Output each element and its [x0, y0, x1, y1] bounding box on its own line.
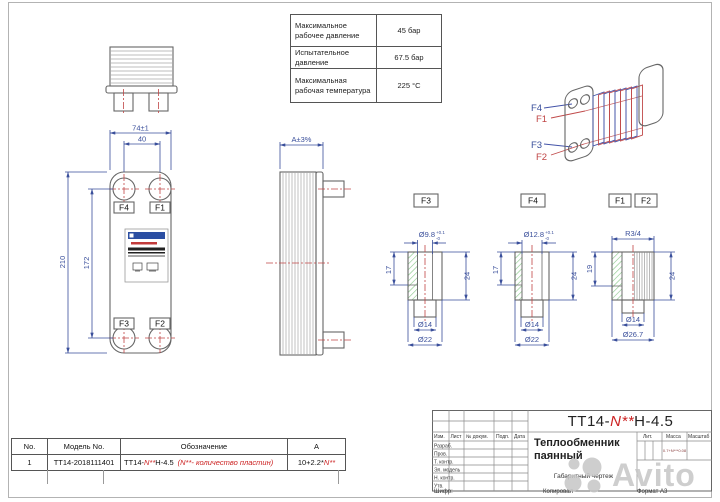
drawing-sheet: Максимальное рабочее давление 45 бар Исп… — [0, 0, 720, 502]
dim-bore-tol-up: +0.1 — [436, 230, 445, 235]
cell-designation: ТТ14-N**H-4.5(N**- количество пластин) — [121, 455, 288, 471]
col-no: No. — [12, 439, 48, 455]
frame-divider — [338, 470, 339, 484]
iso-label-f4: F4 — [531, 103, 542, 114]
dim-bore-tol-low: -0 — [545, 236, 549, 241]
plate-stack — [593, 85, 643, 146]
iso-label-f2: F2 — [536, 152, 547, 163]
dim-thread: R3/4 — [625, 229, 641, 238]
des-note-red: (N**- количество пластин) — [178, 458, 274, 467]
row-razrab: Разраб. — [434, 444, 452, 450]
dim-h-total: 24 — [668, 272, 677, 280]
row-tkontr: Т. контр. — [434, 460, 454, 466]
fitting-f3: F3 Ø9.8 +0.1 -0 17 24 Ø14 Ø22 — [380, 190, 480, 355]
title-part: H-4.5 — [634, 413, 673, 430]
dim-outer: Ø26.7 — [623, 330, 643, 339]
top-view — [100, 40, 190, 120]
spec-label: Максимальное рабочее давление — [291, 15, 377, 47]
avito-logo-icon — [562, 453, 608, 497]
parts-header-row: No. Модель No. Обозначение A — [12, 439, 346, 455]
th-doc: № докум. — [466, 434, 488, 440]
fitting-label: F3 — [421, 196, 431, 206]
dim-bore-tol-up: +0.1 — [545, 230, 554, 235]
port-label-f3: F3 — [119, 319, 129, 329]
spec-label: Максимальная рабочая температура — [291, 69, 377, 103]
dim-port-height: 172 — [82, 257, 91, 270]
cell-a: 10+2.2*N** — [288, 455, 346, 471]
dim-h-upper: 17 — [384, 266, 393, 274]
iso-label-f1: F1 — [536, 114, 547, 125]
parts-table: No. Модель No. Обозначение A 1 TT14-2018… — [11, 438, 346, 471]
spec-row: Испытательное давление 67.5 бар — [291, 47, 442, 69]
front-plate — [565, 84, 593, 163]
des-part-red: N** — [144, 458, 155, 467]
dim-bore: Ø12.8 — [524, 230, 544, 239]
dim-stub: Ø14 — [525, 320, 539, 329]
parts-data-row: 1 TT14-2018111401 ТТ14-N**H-4.5(N**- кол… — [12, 455, 346, 471]
iso-label-f3: F3 — [531, 140, 542, 151]
dim-h-total: 24 — [570, 272, 579, 280]
col-model: Модель No. — [48, 439, 121, 455]
port-label-f2: F2 — [155, 319, 165, 329]
side-view: A±3% — [258, 128, 364, 368]
dim-bore: Ø9.8 — [419, 230, 435, 239]
col-a: A — [288, 439, 346, 455]
a-part: 10+2.2* — [298, 458, 324, 467]
front-view: F4 F1 F3 F2 74±1 40 210 172 — [55, 120, 205, 368]
spec-row: Максимальная рабочая температура 225 °C — [291, 69, 442, 103]
nameplate-sticker — [125, 229, 168, 282]
a-part-red: N** — [324, 458, 335, 467]
fitting-label-f1: F1 — [615, 196, 625, 206]
des-part: ТТ14- — [124, 458, 144, 467]
dim-stub: Ø14 — [626, 315, 640, 324]
col-designation: Обозначение — [121, 439, 288, 455]
dim-h-upper: 17 — [491, 266, 500, 274]
doc-name-line1: Теплообменник — [534, 437, 638, 450]
th-data: Дата — [514, 434, 525, 440]
fitting-f4: F4 Ø12.8 +0.1 -0 17 24 Ø14 Ø22 — [487, 190, 587, 355]
frame-divider — [103, 470, 104, 484]
th-list: Лист — [451, 434, 463, 440]
title-part: ТТ14- — [568, 413, 611, 430]
cell-model: TT14-2018111401 — [48, 455, 121, 471]
row-elmodel: Эл. модель — [434, 468, 461, 474]
centerlines — [266, 189, 352, 340]
port-label-f4: F4 — [119, 203, 129, 213]
spec-value: 67.5 бар — [377, 47, 442, 69]
th-masshtab: Масштаб — [688, 434, 710, 440]
th-podp: Подп. — [496, 434, 509, 440]
dim-port-spacing: 40 — [138, 135, 146, 144]
dim-h-total: 24 — [463, 272, 472, 280]
dim-flange: Ø22 — [525, 335, 539, 344]
spec-label: Испытательное давление — [291, 47, 377, 69]
dim-thickness: A±3% — [292, 135, 312, 144]
drawing-number: ТТ14-N**H-4.5 — [529, 411, 712, 431]
th-izm: Изм. — [434, 434, 445, 440]
shifr-label: Шифр: — [434, 489, 453, 495]
iso-view: F4 F1 F3 F2 — [525, 60, 715, 175]
spec-value: 225 °C — [377, 69, 442, 103]
port-label-f1: F1 — [155, 203, 165, 213]
dim-width: 74±1 — [132, 124, 149, 133]
dim-stub: Ø14 — [418, 320, 432, 329]
spec-table: Максимальное рабочее давление 45 бар Исп… — [290, 14, 442, 103]
fitting-label-f2: F2 — [641, 196, 651, 206]
row-nkontr: Н. контр. — [434, 476, 455, 482]
spec-value: 45 бар — [377, 15, 442, 47]
spec-row: Максимальное рабочее давление 45 бар — [291, 15, 442, 47]
th-lit: Лит. — [643, 434, 652, 440]
dim-bore-tol-low: -0 — [436, 236, 440, 241]
watermark-text: Avito — [612, 457, 696, 494]
fitting-label: F4 — [528, 196, 538, 206]
frame-divider — [47, 470, 48, 484]
fitting-f1f2: F1 F2 R3/4 19 24 Ø14 Ø26.7 — [579, 190, 703, 350]
row-prov: Пров. — [434, 452, 447, 458]
th-massa: Масса — [666, 434, 681, 440]
dim-h-upper: 19 — [585, 265, 594, 273]
dim-height: 210 — [58, 256, 67, 269]
cell-no: 1 — [12, 455, 48, 471]
title-part-red: N** — [610, 413, 634, 430]
dim-flange: Ø22 — [418, 335, 432, 344]
des-part: H-4.5 — [155, 458, 173, 467]
avito-watermark: Avito — [562, 453, 696, 497]
